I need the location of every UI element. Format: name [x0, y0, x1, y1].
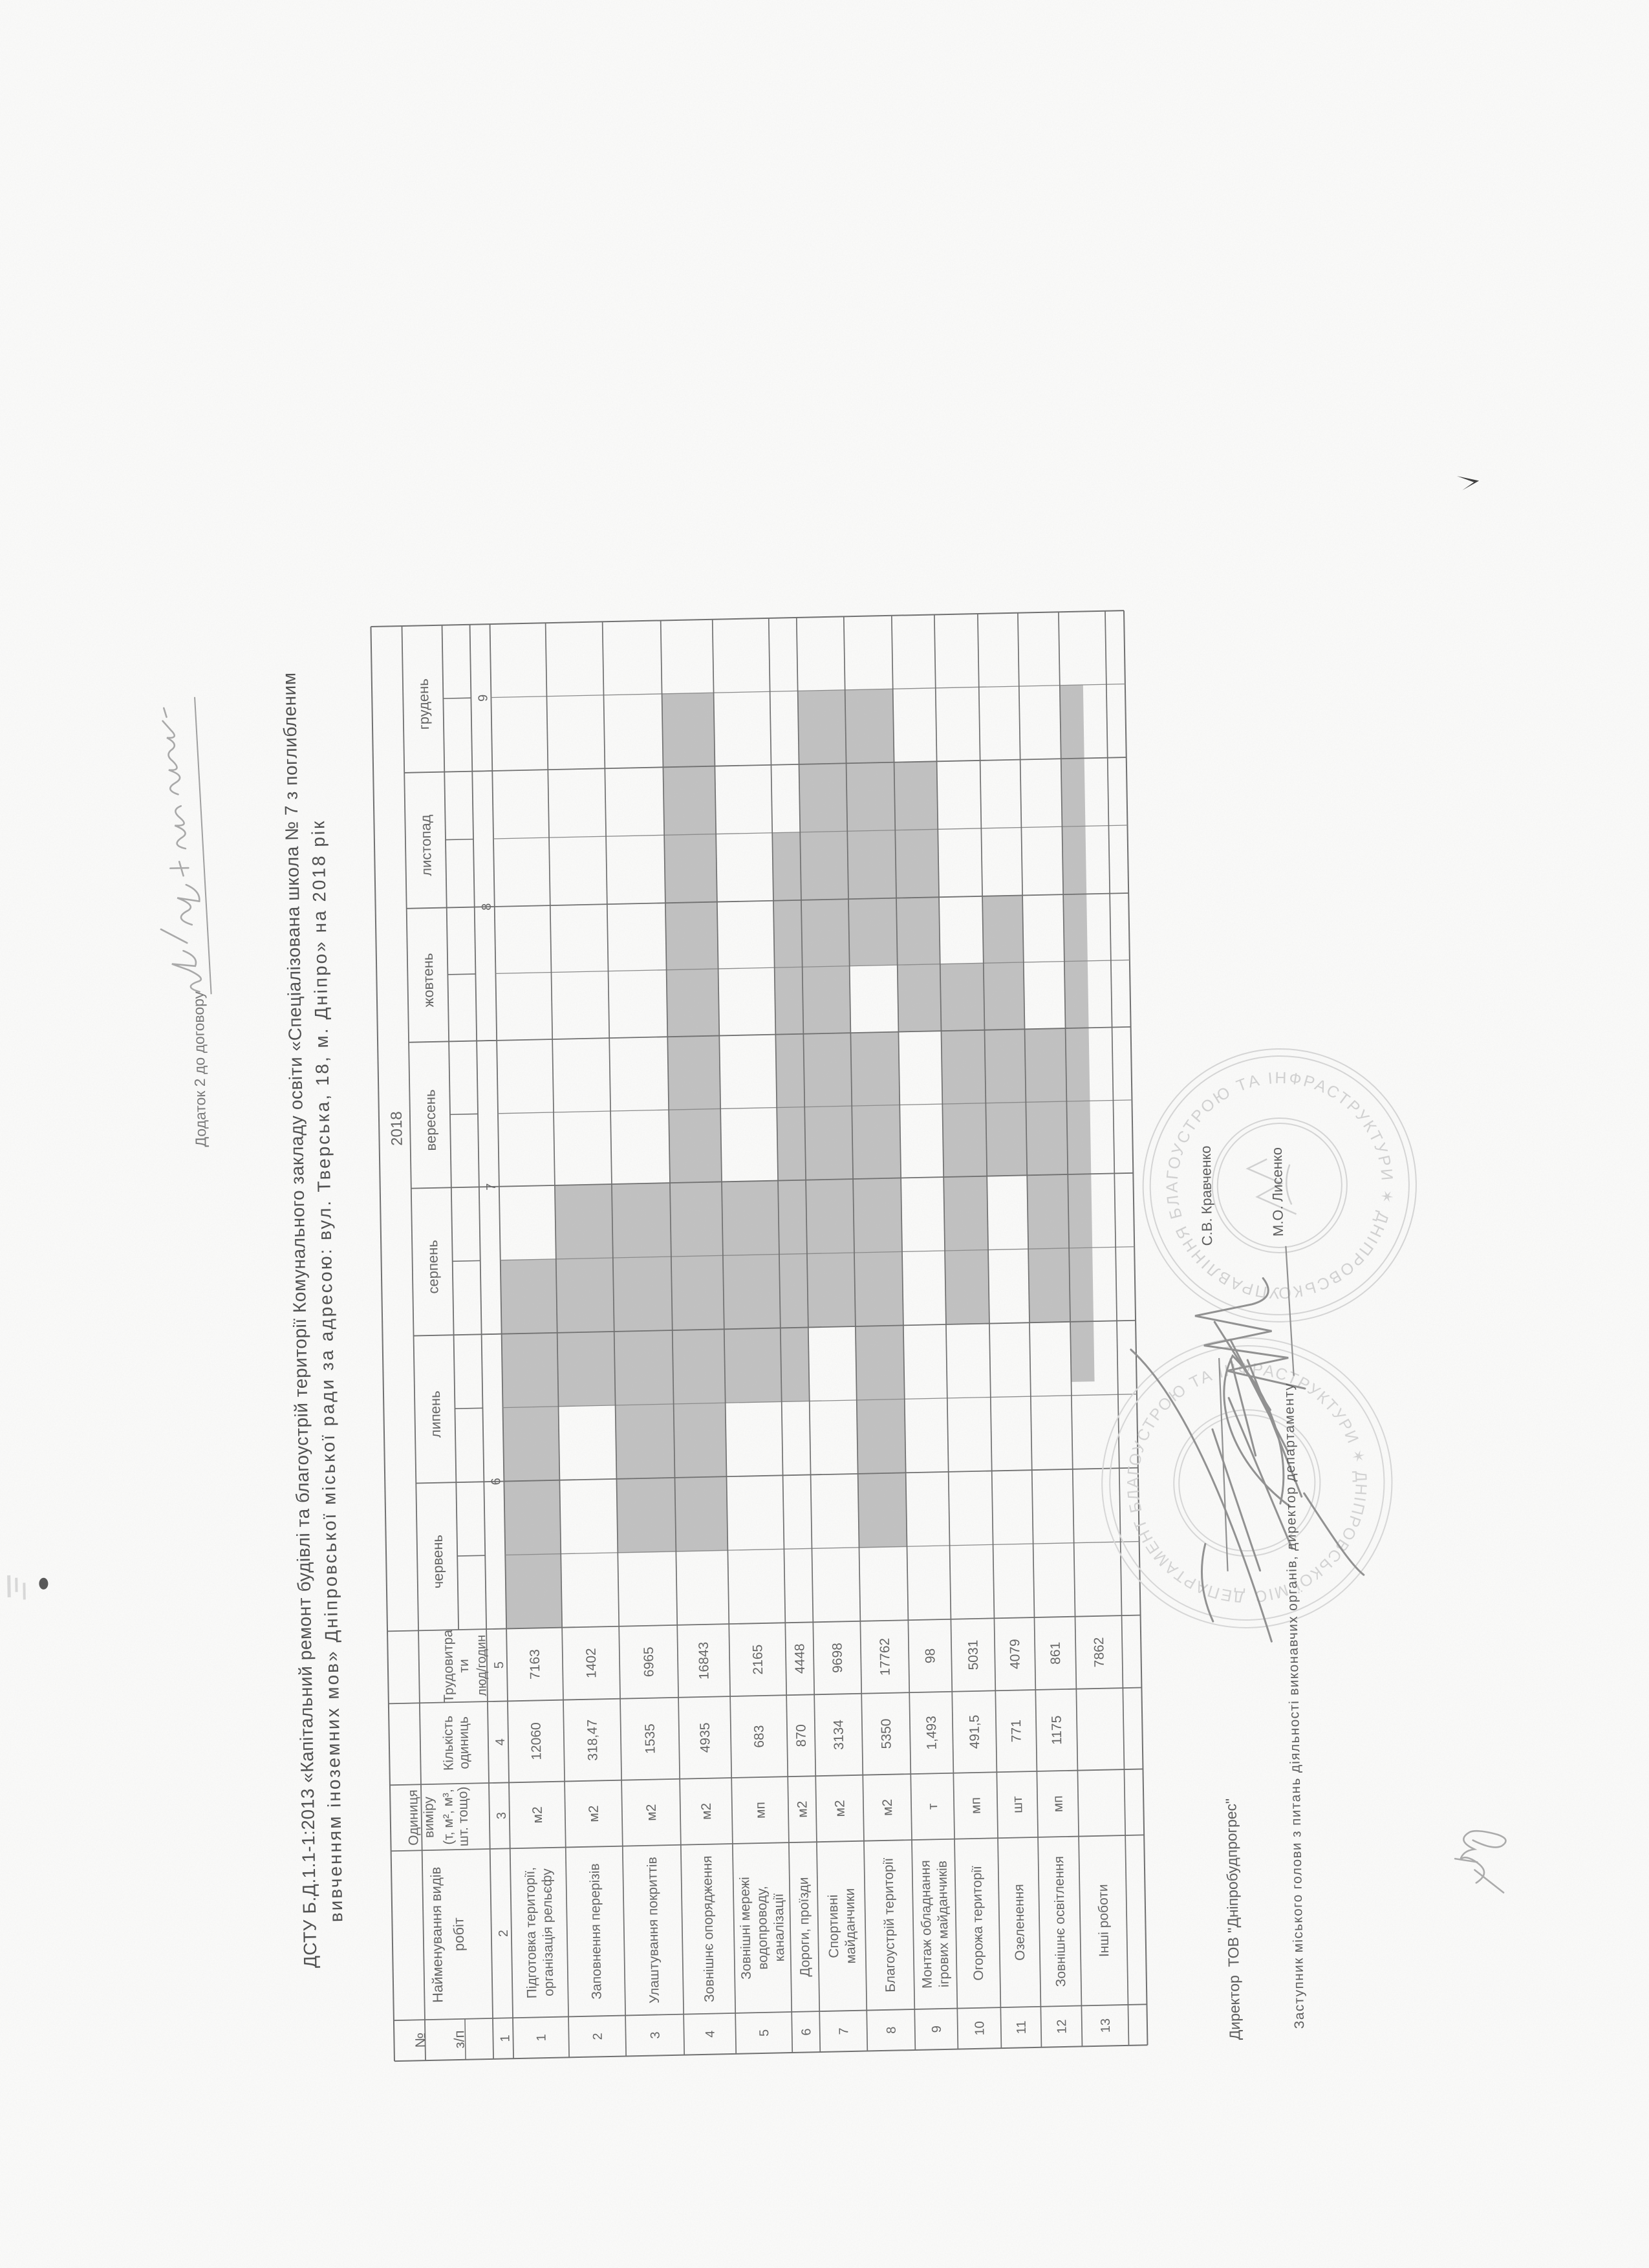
- svg-text:7: 7: [837, 2027, 851, 2035]
- svg-text:каналізації: каналізації: [771, 1893, 788, 1961]
- svg-text:318,47: 318,47: [585, 1719, 601, 1761]
- svg-text:Благоустрій території: Благоустрій території: [881, 1857, 898, 1993]
- svg-text:листопад: листопад: [417, 814, 435, 876]
- svg-text:9698: 9698: [830, 1643, 845, 1673]
- svg-text:5031: 5031: [965, 1639, 981, 1670]
- svg-text:1535: 1535: [643, 1723, 658, 1754]
- svg-text:Найменування видів: Найменування видів: [427, 1866, 446, 2003]
- svg-text:робіт: робіт: [450, 1917, 467, 1952]
- svg-text:3: 3: [649, 2031, 663, 2039]
- svg-text:водопроводу,: водопроводу,: [754, 1886, 770, 1970]
- svg-text:8: 8: [480, 903, 494, 911]
- svg-text:ігрових майданчиків: ігрових майданчиків: [935, 1861, 952, 1987]
- svg-text:Одиниця: Одиниця: [405, 1789, 421, 1846]
- svg-text:майданчики: майданчики: [843, 1888, 859, 1963]
- svg-text:м2: м2: [832, 1800, 847, 1817]
- svg-text:Монтаж обладнання: Монтаж обладнання: [918, 1860, 935, 1989]
- svg-text:16843: 16843: [696, 1642, 712, 1680]
- svg-text:98: 98: [923, 1648, 938, 1664]
- svg-text:Дороги, проїзди: Дороги, проїзди: [796, 1877, 813, 1977]
- svg-text:5: 5: [492, 1661, 506, 1669]
- svg-text:4448: 4448: [792, 1643, 808, 1674]
- svg-text:13: 13: [1099, 2018, 1113, 2033]
- svg-text:мп: мп: [968, 1797, 983, 1814]
- svg-text:7163: 7163: [528, 1649, 543, 1679]
- svg-text:861: 861: [1048, 1642, 1064, 1665]
- svg-text:організація рельєфу: організація рельєфу: [539, 1868, 556, 1996]
- svg-text:м2: м2: [699, 1803, 714, 1820]
- svg-text:виміру: виміру: [421, 1796, 436, 1838]
- svg-text:Спортивні: Спортивні: [826, 1894, 842, 1958]
- svg-text:мп: мп: [753, 1802, 768, 1819]
- svg-text:червень: червень: [429, 1535, 446, 1589]
- svg-text:№: №: [412, 2033, 428, 2048]
- svg-text:з/п: з/п: [451, 2030, 467, 2049]
- svg-text:6965: 6965: [641, 1647, 657, 1677]
- svg-text:12060: 12060: [529, 1722, 544, 1760]
- svg-text:5350: 5350: [879, 1718, 894, 1749]
- svg-text:вересень: вересень: [422, 1089, 439, 1150]
- svg-text:6: 6: [799, 2028, 814, 2036]
- svg-text:серпень: серпень: [424, 1240, 441, 1294]
- svg-text:8: 8: [885, 2026, 899, 2034]
- svg-text:м2: м2: [795, 1800, 810, 1818]
- svg-text:мп: мп: [1051, 1795, 1066, 1812]
- svg-text:Інші роботи: Інші роботи: [1095, 1884, 1112, 1957]
- svg-text:2: 2: [591, 2033, 605, 2040]
- svg-text:5: 5: [757, 2029, 771, 2037]
- svg-text:липень: липень: [427, 1390, 444, 1438]
- svg-text:10: 10: [973, 2021, 987, 2036]
- svg-text:Улаштування покриттів: Улаштування покриттів: [645, 1857, 662, 2003]
- svg-text:7: 7: [484, 1183, 499, 1191]
- svg-text:1175: 1175: [1050, 1715, 1065, 1745]
- svg-text:491,5: 491,5: [967, 1714, 982, 1749]
- svg-text:6: 6: [489, 1478, 503, 1485]
- svg-text:Озеленення: Озеленення: [1011, 1884, 1028, 1961]
- svg-text:Зовнішнє опорядження: Зовнішнє опорядження: [700, 1855, 717, 2002]
- svg-text:4: 4: [493, 1738, 508, 1746]
- svg-text:шт: шт: [1010, 1796, 1025, 1813]
- svg-text:Кількість: Кількість: [440, 1716, 456, 1771]
- svg-text:4935: 4935: [698, 1722, 713, 1753]
- svg-text:4079: 4079: [1008, 1639, 1023, 1669]
- svg-text:Заповнення перерізів: Заповнення перерізів: [587, 1863, 604, 2000]
- svg-text:Огорожа території: Огорожа території: [969, 1866, 986, 1981]
- svg-text:2018: 2018: [388, 1111, 406, 1146]
- svg-text:1: 1: [534, 2034, 548, 2042]
- svg-text:м2: м2: [644, 1804, 659, 1821]
- svg-text:одиниць: одиниць: [456, 1716, 471, 1769]
- svg-text:ти: ти: [457, 1659, 471, 1673]
- svg-text:17762: 17762: [878, 1638, 893, 1676]
- svg-text:3: 3: [495, 1812, 509, 1820]
- svg-text:Зовнішні мережі: Зовнішні мережі: [737, 1877, 754, 1980]
- svg-text:(т, м², м³,: (т, м², м³,: [440, 1789, 456, 1845]
- svg-text:771: 771: [1009, 1720, 1024, 1743]
- svg-text:шт. тощо): шт. тощо): [455, 1786, 471, 1846]
- svg-text:люд/годин: люд/годин: [474, 1635, 490, 1696]
- svg-text:1402: 1402: [584, 1648, 599, 1678]
- svg-text:870: 870: [793, 1724, 809, 1747]
- svg-text:м2: м2: [587, 1805, 601, 1822]
- svg-text:Трудовитра: Трудовитра: [440, 1630, 457, 1703]
- svg-text:7862: 7862: [1092, 1637, 1107, 1667]
- svg-text:4: 4: [704, 2030, 718, 2038]
- svg-text:жовтень: жовтень: [420, 953, 436, 1007]
- svg-text:м2: м2: [880, 1799, 895, 1817]
- svg-text:11: 11: [1015, 2020, 1029, 2034]
- svg-text:2165: 2165: [750, 1645, 766, 1675]
- svg-text:м2: м2: [530, 1806, 545, 1824]
- svg-text:683: 683: [751, 1725, 767, 1748]
- svg-text:2: 2: [497, 1930, 511, 1938]
- svg-text:9: 9: [476, 695, 490, 702]
- svg-text:т: т: [925, 1803, 940, 1809]
- svg-text:1,493: 1,493: [924, 1716, 940, 1750]
- svg-text:3134: 3134: [831, 1720, 846, 1751]
- svg-text:Підготовка території,: Підготовка території,: [523, 1867, 539, 1999]
- svg-text:1: 1: [498, 2035, 512, 2042]
- svg-text:12: 12: [1055, 2019, 1069, 2034]
- svg-text:9: 9: [930, 2025, 944, 2033]
- svg-text:грудень: грудень: [415, 678, 432, 729]
- svg-text:Зовнішнє освітлення: Зовнішнє освітлення: [1051, 1856, 1068, 1987]
